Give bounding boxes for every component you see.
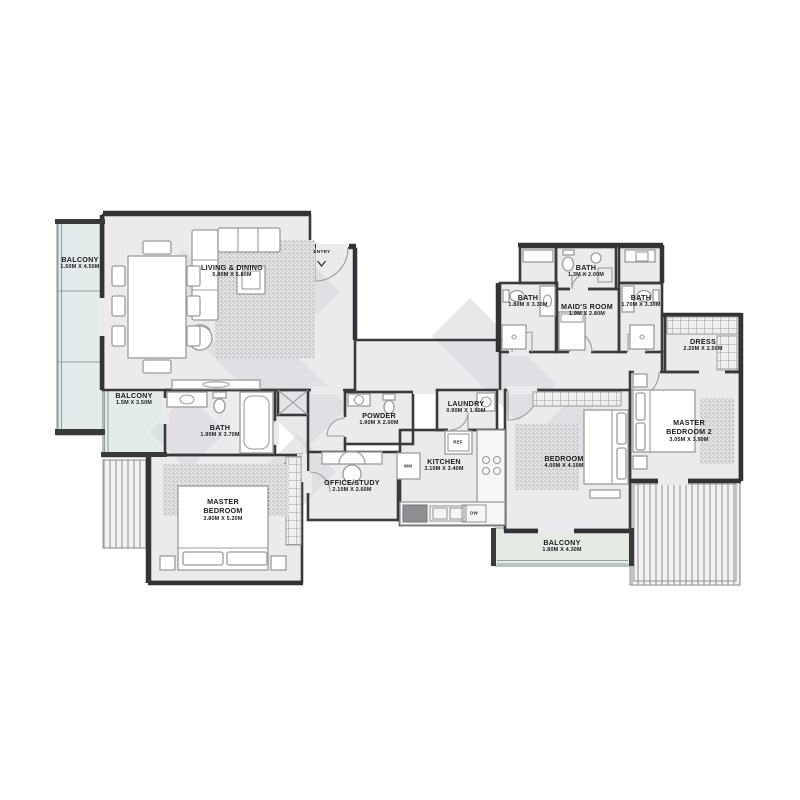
room-label-master-bedroom-2: MASTER BEDROOM 2 3.05M X 3.90M: [659, 418, 719, 444]
room-dims: 5.80M X 5.80M: [201, 272, 263, 279]
room-dims: 3.05M X 3.90M: [659, 437, 719, 444]
room-name: DRESS: [683, 337, 722, 346]
room-name: BATH: [508, 293, 547, 302]
room-label-dress: DRESS 2.20M X 2.50M: [683, 337, 722, 354]
room-label-bath-3: BATH 1.80M X 3.30M: [508, 293, 547, 310]
refrigerator-label: REF: [453, 440, 462, 445]
room-dims: 1.90M X 2.00M: [359, 420, 398, 427]
room-name: POWDER: [359, 411, 398, 420]
room-label-balcony-left: BALCONY 1.5M X 3.50M: [115, 391, 152, 408]
room-name: BATH: [200, 423, 239, 432]
room-dims: 1.80M X 4.30M: [542, 547, 581, 554]
room-label-living-dining: LIVING & DINING 5.80M X 5.80M: [201, 263, 263, 280]
room-name: BATH: [568, 263, 604, 272]
room-dims: 1.50M X 4.50M: [60, 264, 99, 271]
room-name: LAUNDRY: [446, 399, 485, 408]
room-label-master-bath: BATH 1.90M X 3.70M: [200, 423, 239, 440]
entry-arrow-down-icon: [317, 260, 327, 267]
room-label-office-study: OFFICE/STUDY 2.10M X 2.60M: [324, 478, 380, 495]
room-name: MASTER BEDROOM: [195, 497, 251, 516]
room-dims: 3.80M X 5.20M: [195, 516, 251, 523]
room-dims: 1.80M X 3.30M: [508, 302, 547, 309]
room-name: OFFICE/STUDY: [324, 478, 380, 487]
room-dims: 3.10M X 3.40M: [424, 466, 463, 473]
room-name: BALCONY: [60, 255, 99, 264]
room-label-master-bedroom: MASTER BEDROOM 3.80M X 5.20M: [195, 497, 251, 523]
floor-plan-canvas: BALCONY 1.50M X 4.50M LIVING & DINING 5.…: [0, 0, 800, 800]
washing-machine-label: WM: [404, 464, 412, 469]
room-name: LIVING & DINING: [201, 263, 263, 272]
room-dims: 4.00M X 4.10M: [544, 463, 583, 470]
room-dims: 0.90M X 1.60M: [446, 408, 485, 415]
room-label-maids-room: MAID'S ROOM 1.9M X 2.80M: [561, 302, 613, 319]
room-name: BALCONY: [115, 391, 152, 400]
room-dims: 2.10M X 2.60M: [324, 487, 380, 494]
room-label-powder: POWDER 1.90M X 2.00M: [359, 411, 398, 428]
room-label-balcony-top-left: BALCONY 1.50M X 4.50M: [60, 255, 99, 272]
entry-marker: ENTRY: [314, 249, 331, 272]
room-dims: 1.90M X 3.70M: [200, 432, 239, 439]
room-name: BATH: [621, 293, 660, 302]
room-name: BEDROOM: [544, 454, 583, 463]
room-dims: 1.3M X 2.00M: [568, 272, 604, 279]
room-name: MASTER BEDROOM 2: [659, 418, 719, 437]
room-label-maids-bath: BATH 1.3M X 2.00M: [568, 263, 604, 280]
room-label-balcony-bottom: BALCONY 1.80M X 4.30M: [542, 538, 581, 555]
room-dims: 1.9M X 2.80M: [561, 311, 613, 318]
room-label-bath-4: BATH 1.70M X 3.30M: [621, 293, 660, 310]
room-dims: 2.20M X 2.50M: [683, 346, 722, 353]
room-name: KITCHEN: [424, 457, 463, 466]
dishwasher-label: DW: [470, 511, 478, 516]
room-dims: 1.5M X 3.50M: [115, 400, 152, 407]
room-label-kitchen: KITCHEN 3.10M X 3.40M: [424, 457, 463, 474]
entry-label: ENTRY: [314, 249, 331, 254]
room-label-bedroom: BEDROOM 4.00M X 4.10M: [544, 454, 583, 471]
room-label-laundry: LAUNDRY 0.90M X 1.60M: [446, 399, 485, 416]
room-dims: 1.70M X 3.30M: [621, 302, 660, 309]
room-name: MAID'S ROOM: [561, 302, 613, 311]
room-name: BALCONY: [542, 538, 581, 547]
